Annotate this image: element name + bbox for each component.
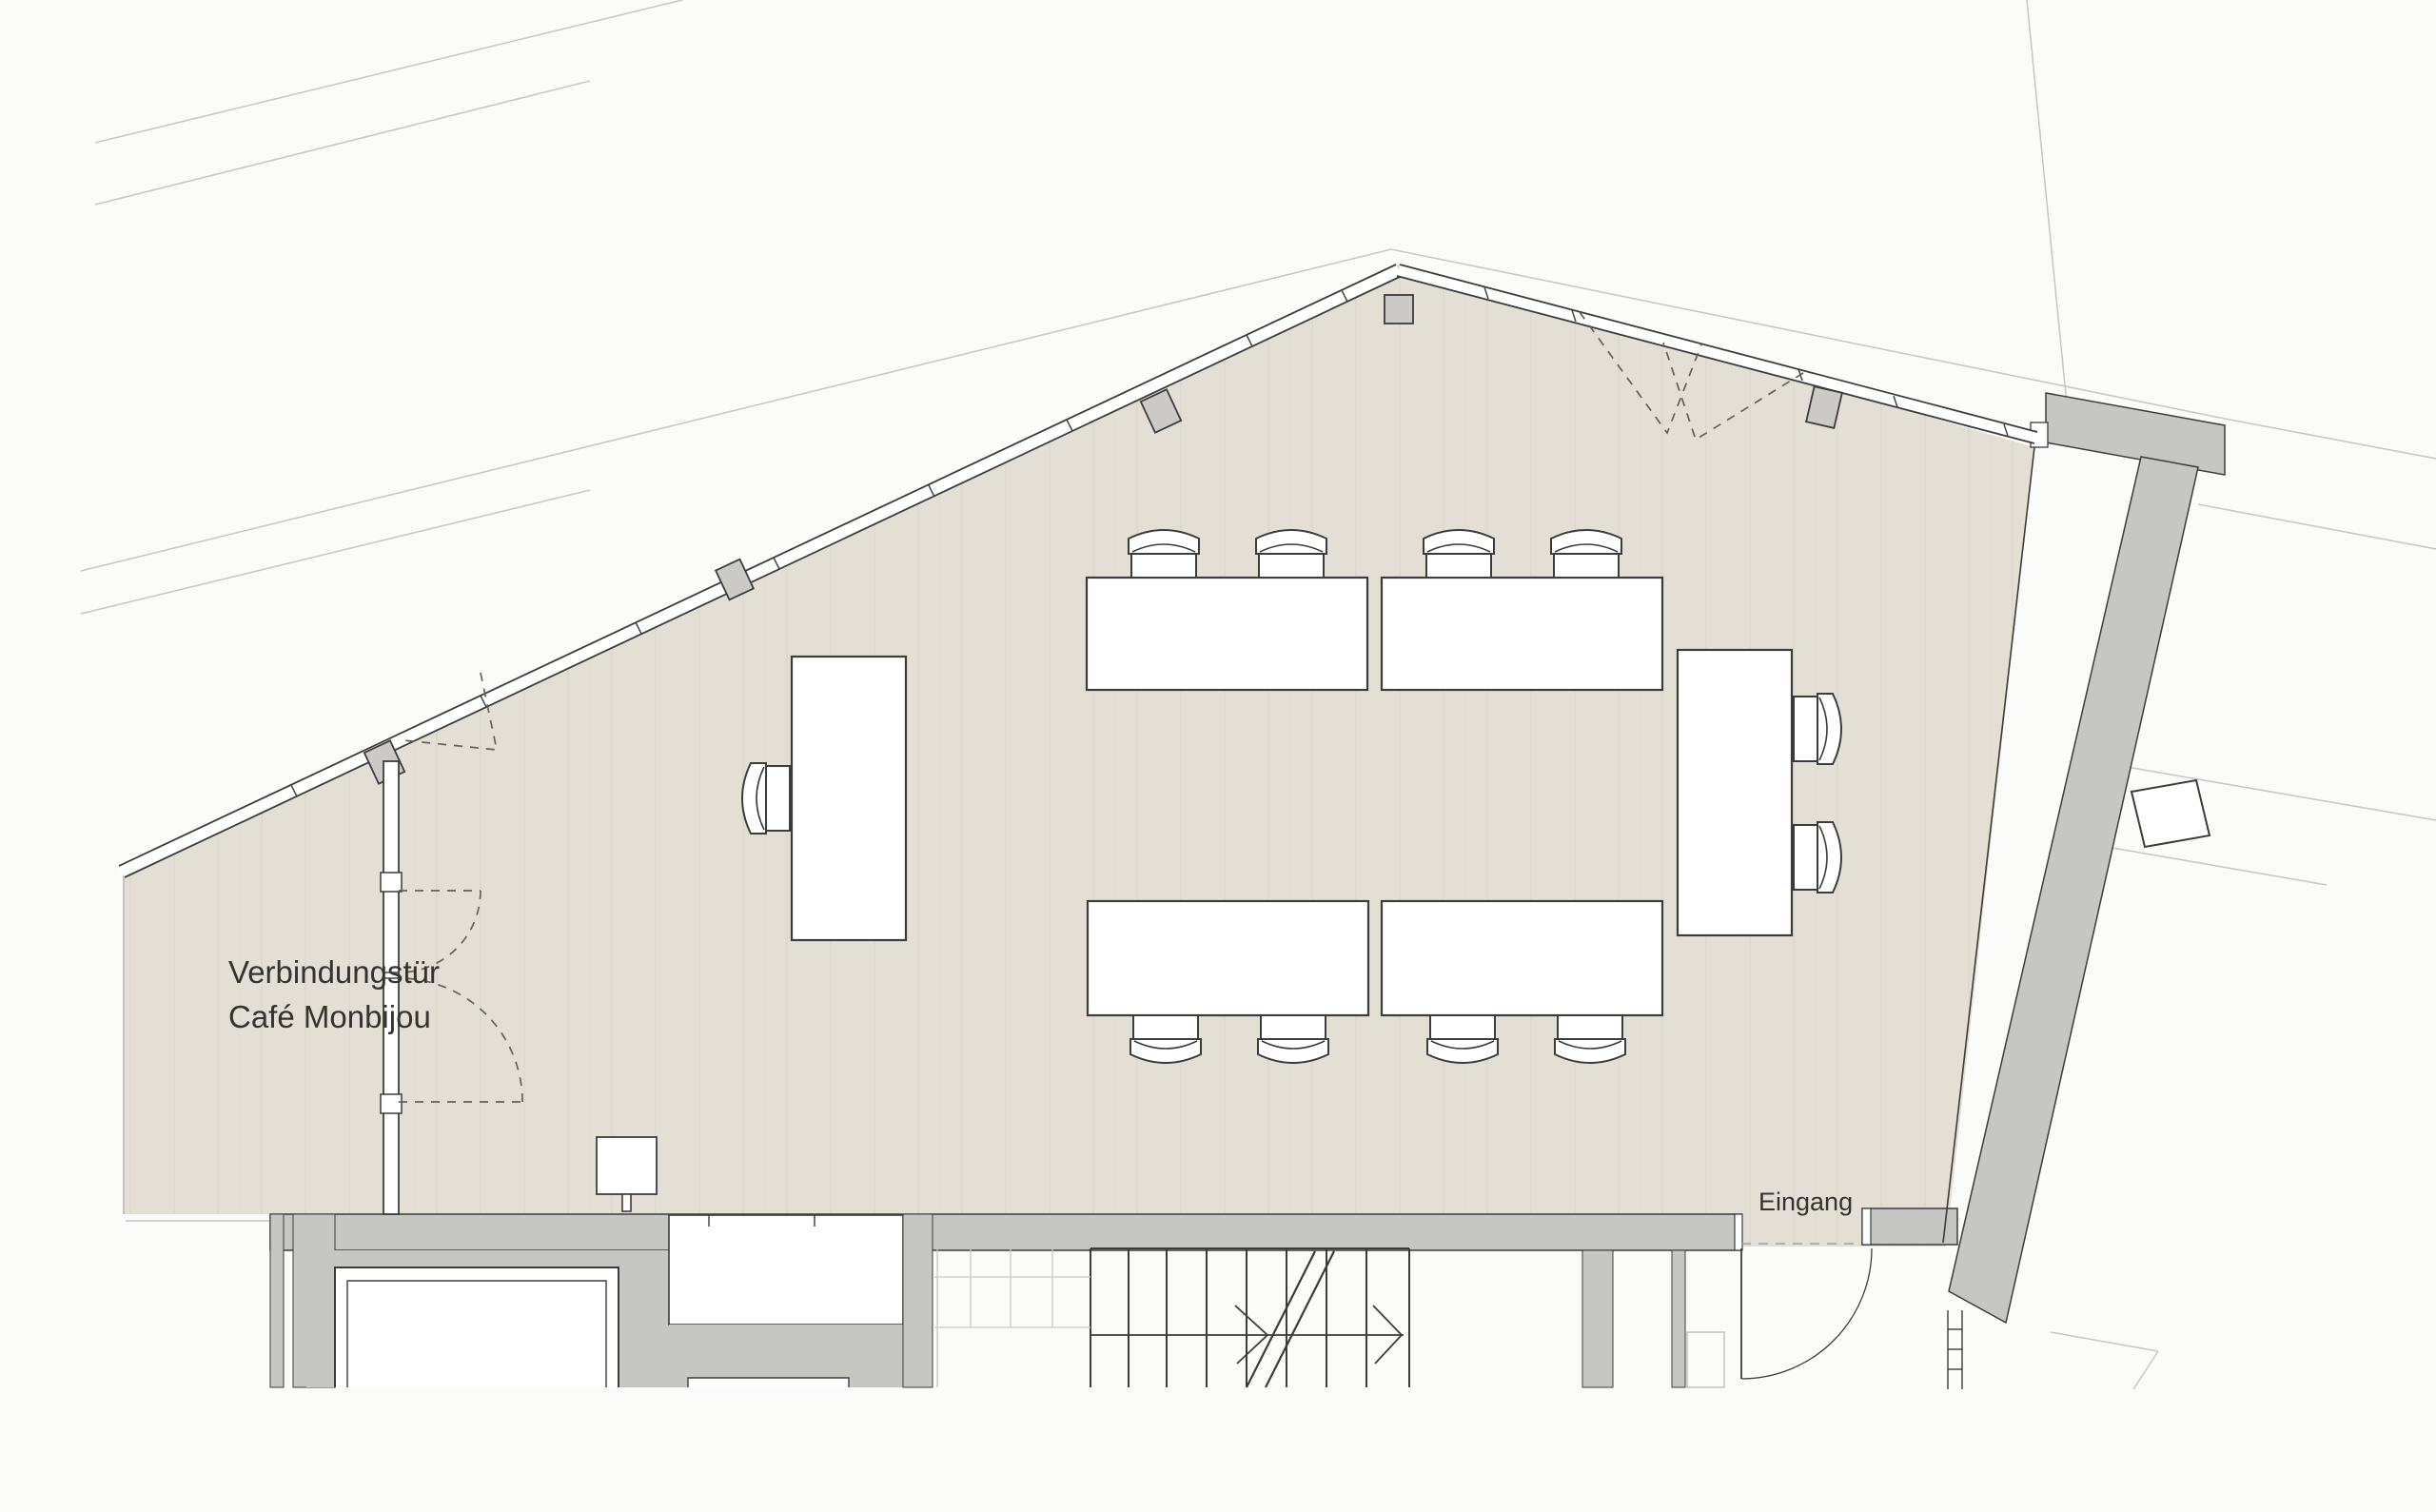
- exterior-pillar: [2131, 780, 2210, 847]
- table: [1382, 578, 1662, 690]
- chair: [1427, 1015, 1498, 1063]
- label-connecting-door-line1: Verbindungstür: [228, 954, 440, 990]
- table: [1088, 901, 1368, 1015]
- side-table: [792, 657, 906, 940]
- bottom-wall-band: [270, 1214, 1741, 1250]
- chair: [1129, 530, 1199, 578]
- label-entrance: Eingang: [1758, 1188, 1853, 1216]
- chair: [1551, 530, 1621, 578]
- label-connecting-door-line2: Café Monbijou: [228, 999, 431, 1034]
- lower-partition-wall: [903, 1214, 933, 1387]
- lower-opening: [669, 1215, 903, 1325]
- chair: [1794, 822, 1841, 893]
- table: [1382, 901, 1662, 1015]
- floor-plan-drawing: Verbindungstür Café Monbijou Eingang: [0, 0, 2436, 1512]
- side-table: [1678, 650, 1792, 935]
- chair: [1256, 530, 1326, 578]
- chair: [1424, 530, 1494, 578]
- chair: [1258, 1015, 1328, 1063]
- chair: [1130, 1015, 1201, 1063]
- chair: [1794, 694, 1841, 764]
- floor-plan-sheet: Verbindungstür Café Monbijou Eingang: [0, 0, 2436, 1512]
- chair: [742, 763, 790, 834]
- chair: [1555, 1015, 1625, 1063]
- table: [1087, 578, 1367, 690]
